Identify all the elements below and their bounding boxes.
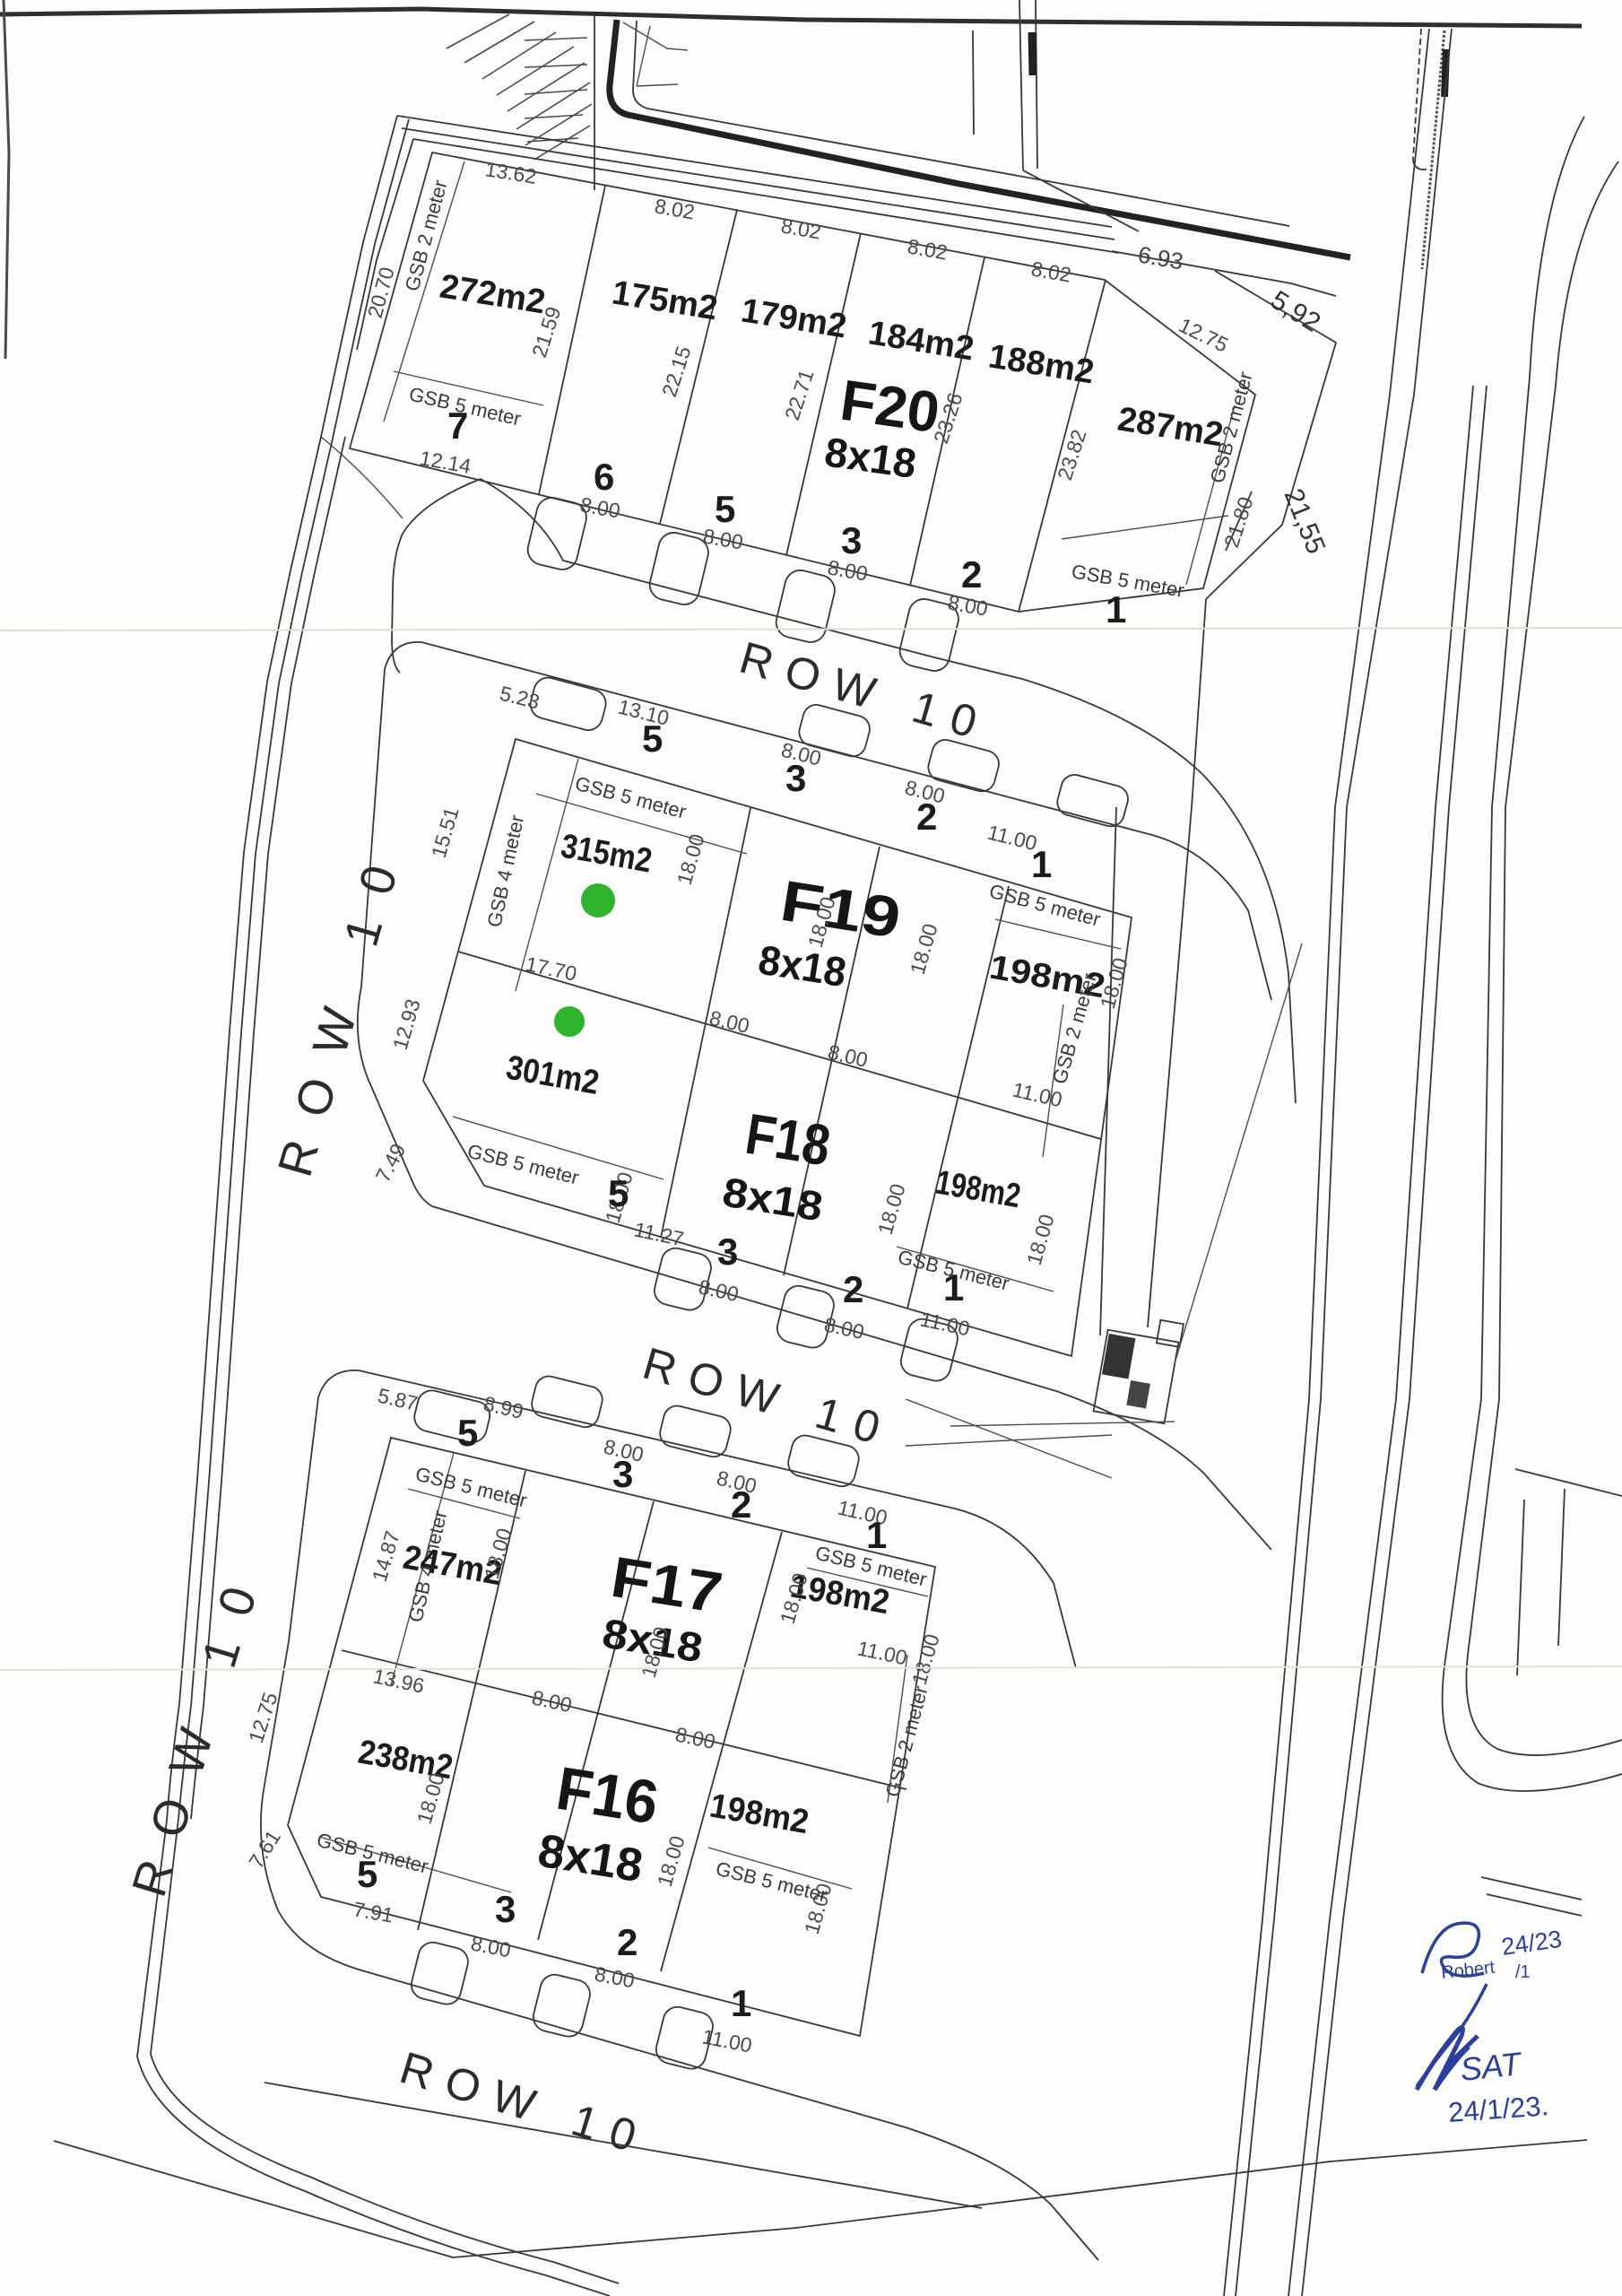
svg-text:7.91: 7.91	[351, 1897, 395, 1926]
svg-text:301m2: 301m2	[503, 1049, 602, 1102]
svg-text:GSB 2 meter: GSB 2 meter	[881, 1683, 932, 1799]
svg-text:8.00: 8.00	[593, 1961, 637, 1992]
svg-text:24/23: 24/23	[1500, 1926, 1564, 1961]
svg-text:272m2: 272m2	[438, 267, 548, 321]
svg-text:315m2: 315m2	[558, 828, 655, 881]
svg-text:8x18: 8x18	[755, 936, 849, 996]
svg-text:8.00: 8.00	[946, 590, 990, 620]
svg-text:23.82: 23.82	[1053, 427, 1091, 483]
svg-text:18.00: 18.00	[873, 1181, 910, 1237]
svg-text:GSB 5 meter: GSB 5 meter	[714, 1857, 829, 1907]
svg-text:3: 3	[612, 1453, 633, 1495]
svg-text:GSB 5 meter: GSB 5 meter	[1070, 560, 1186, 602]
svg-text:8.00: 8.00	[707, 1006, 751, 1038]
svg-text:18.00: 18.00	[480, 1526, 516, 1581]
svg-text:7.61: 7.61	[244, 1826, 285, 1873]
svg-text:8.00: 8.00	[673, 1722, 717, 1753]
svg-text:8x18: 8x18	[534, 1825, 646, 1893]
svg-text:198m2: 198m2	[707, 1787, 811, 1842]
svg-text:17.70: 17.70	[524, 952, 579, 985]
svg-text:8.99: 8.99	[481, 1392, 525, 1423]
svg-text:179m2: 179m2	[739, 291, 849, 345]
svg-text:3: 3	[841, 519, 862, 561]
svg-text:11.00: 11.00	[855, 1636, 909, 1669]
svg-text:8.00: 8.00	[826, 1040, 870, 1072]
svg-text:ROW 10: ROW 10	[395, 2042, 656, 2166]
svg-text:GSB 5 meter: GSB 5 meter	[573, 772, 689, 823]
svg-text:12.93: 12.93	[388, 996, 425, 1052]
svg-text:5: 5	[642, 717, 663, 760]
svg-text:2: 2	[961, 553, 982, 596]
svg-text:22.15: 22.15	[657, 344, 696, 400]
svg-text:1: 1	[731, 1982, 751, 2024]
svg-text:Robert: Robert	[1440, 1958, 1496, 1983]
svg-text:184m2: 184m2	[866, 314, 976, 368]
svg-text:GSB 4 meter: GSB 4 meter	[482, 813, 528, 929]
svg-text:GSB 5 meter: GSB 5 meter	[413, 1463, 529, 1512]
svg-text:8x18: 8x18	[719, 1169, 826, 1231]
svg-text:F19: F19	[776, 868, 906, 951]
svg-text:1: 1	[1106, 588, 1126, 631]
svg-text:ROW 10: ROW 10	[734, 632, 996, 752]
svg-text:24/1/23.: 24/1/23.	[1447, 2090, 1549, 2128]
svg-text:F18: F18	[742, 1101, 835, 1178]
svg-text:287m2: 287m2	[1115, 400, 1226, 454]
svg-text:1: 1	[943, 1266, 964, 1309]
svg-text:2: 2	[731, 1483, 751, 1526]
svg-text:13.62: 13.62	[483, 157, 538, 188]
svg-text:198m2: 198m2	[932, 1164, 1023, 1216]
svg-text:18.00: 18.00	[1022, 1212, 1059, 1267]
svg-text:11.27: 11.27	[632, 1217, 686, 1250]
svg-text:8.02: 8.02	[1029, 257, 1073, 286]
svg-text:5,92: 5,92	[1265, 285, 1325, 338]
svg-text:6.93: 6.93	[1136, 240, 1185, 274]
svg-text:8.02: 8.02	[779, 213, 823, 243]
svg-text:5.87: 5.87	[376, 1384, 420, 1415]
svg-text:188m2: 188m2	[986, 337, 1097, 391]
svg-text:1: 1	[1031, 843, 1052, 885]
svg-text:ROW 10: ROW 10	[638, 1338, 899, 1457]
svg-text:3: 3	[717, 1231, 738, 1273]
svg-text:2: 2	[916, 796, 937, 838]
svg-text:21,55: 21,55	[1279, 484, 1331, 558]
svg-text:3: 3	[495, 1888, 516, 1930]
svg-text:3: 3	[785, 757, 806, 799]
svg-text:2: 2	[617, 1921, 638, 1963]
svg-text:11.00: 11.00	[918, 1307, 972, 1340]
svg-text:8.00: 8.00	[822, 1312, 866, 1344]
svg-text:18.00: 18.00	[1096, 955, 1132, 1011]
svg-text:/1: /1	[1515, 1962, 1531, 1982]
svg-text:5: 5	[357, 1853, 377, 1895]
svg-text:5: 5	[608, 1172, 629, 1214]
svg-text:12.75: 12.75	[1175, 313, 1232, 357]
svg-text:2: 2	[843, 1268, 863, 1310]
svg-text:ROW 10: ROW 10	[268, 834, 415, 1183]
svg-text:18.00: 18.00	[672, 831, 709, 887]
svg-text:14.87: 14.87	[368, 1528, 404, 1584]
svg-text:8.00: 8.00	[578, 492, 622, 522]
svg-text:8.00: 8.00	[530, 1685, 574, 1717]
svg-text:18.00: 18.00	[906, 921, 942, 977]
svg-text:1: 1	[866, 1514, 887, 1556]
svg-text:175m2: 175m2	[610, 274, 720, 327]
svg-text:GSB 5 meter: GSB 5 meter	[987, 880, 1103, 931]
svg-text:8.02: 8.02	[906, 234, 950, 264]
svg-text:18.00: 18.00	[653, 1833, 690, 1889]
svg-text:12.14: 12.14	[418, 446, 473, 478]
svg-text:22.71: 22.71	[780, 367, 819, 423]
svg-text:7: 7	[447, 404, 468, 447]
svg-text:SAT: SAT	[1459, 2045, 1525, 2088]
svg-text:6: 6	[594, 456, 614, 498]
svg-text:5: 5	[715, 488, 735, 530]
svg-text:8.02: 8.02	[653, 194, 697, 223]
svg-text:18.00: 18.00	[907, 1631, 944, 1687]
svg-text:15.51: 15.51	[427, 804, 464, 860]
svg-text:11.00: 11.00	[700, 2024, 754, 2057]
svg-text:8.00: 8.00	[469, 1931, 513, 1961]
svg-text:5: 5	[457, 1412, 478, 1454]
